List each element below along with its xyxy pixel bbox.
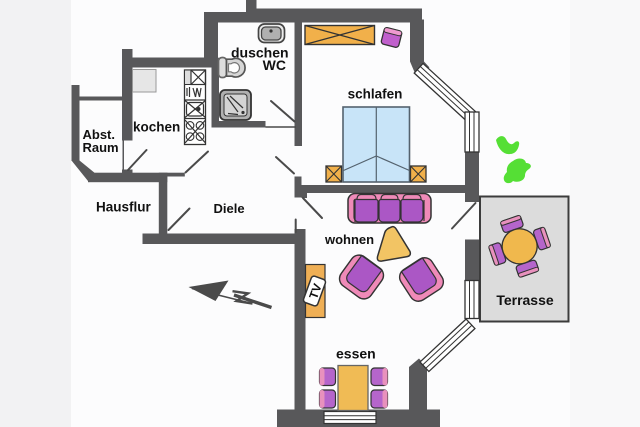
svg-text:Raum: Raum bbox=[83, 140, 119, 155]
svg-text:WC: WC bbox=[263, 57, 286, 73]
svg-text:schlafen: schlafen bbox=[348, 87, 403, 102]
svg-text:kochen: kochen bbox=[133, 120, 180, 135]
svg-text:Diele: Diele bbox=[214, 201, 245, 216]
svg-text:wohnen: wohnen bbox=[324, 232, 374, 247]
svg-text:essen: essen bbox=[336, 346, 376, 362]
svg-text:Terrasse: Terrasse bbox=[496, 292, 554, 308]
svg-text:Hausflur: Hausflur bbox=[96, 200, 152, 215]
